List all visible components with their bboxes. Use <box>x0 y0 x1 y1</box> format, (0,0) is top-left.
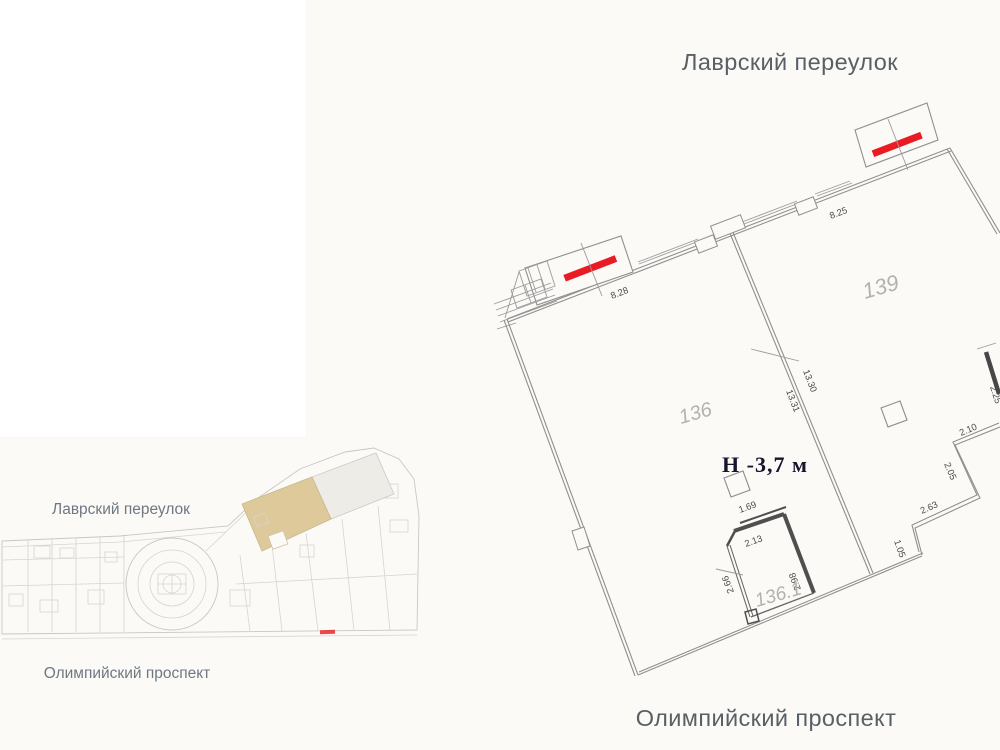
minimap-entrance-marker <box>320 630 335 635</box>
pilaster <box>695 235 718 253</box>
dim-2-25: 2.25 <box>988 385 1000 405</box>
dim-8-25: 8.25 <box>828 205 848 221</box>
room-number-139: 139 <box>859 270 901 304</box>
dimension-labels: 8.28 8.25 13.30 13.31 2.25 2.10 2.05 2.6… <box>609 205 1000 595</box>
street-label-bottom: Олимпийский проспект <box>636 705 897 731</box>
minimap-street-label-bottom: Олимпийский проспект <box>44 665 211 682</box>
room-number-136: 136 <box>676 398 715 429</box>
vestibule-right <box>855 103 938 170</box>
ceiling-height-label: Н -3,7 м <box>722 452 808 477</box>
dim-1-05: 1.05 <box>892 538 907 558</box>
minimap-street-label-top: Лаврский переулок <box>52 501 190 518</box>
dim-13-30: 13.30 <box>801 368 819 393</box>
dim-8-28: 8.28 <box>609 285 629 301</box>
pilaster <box>795 197 818 215</box>
dim-1-69: 1.69 <box>737 499 757 515</box>
dim-2-05: 2.05 <box>942 461 958 482</box>
dim-2-66: 2.66 <box>720 574 736 594</box>
street-label-top: Лаврский переулок <box>682 49 898 75</box>
main-floor-plan: 8.28 8.25 13.30 13.31 2.25 2.10 2.05 2.6… <box>494 103 1000 676</box>
window-band <box>638 181 852 264</box>
column <box>881 401 907 427</box>
minimap-plan <box>2 448 419 639</box>
ramp-circles <box>126 507 252 630</box>
page: 8.28 8.25 13.30 13.31 2.25 2.10 2.05 2.6… <box>0 0 1000 750</box>
plan-drawing: 8.28 8.25 13.30 13.31 2.25 2.10 2.05 2.6… <box>0 0 1000 750</box>
left-wall-niche <box>572 527 590 550</box>
dim-2-13: 2.13 <box>743 533 763 549</box>
